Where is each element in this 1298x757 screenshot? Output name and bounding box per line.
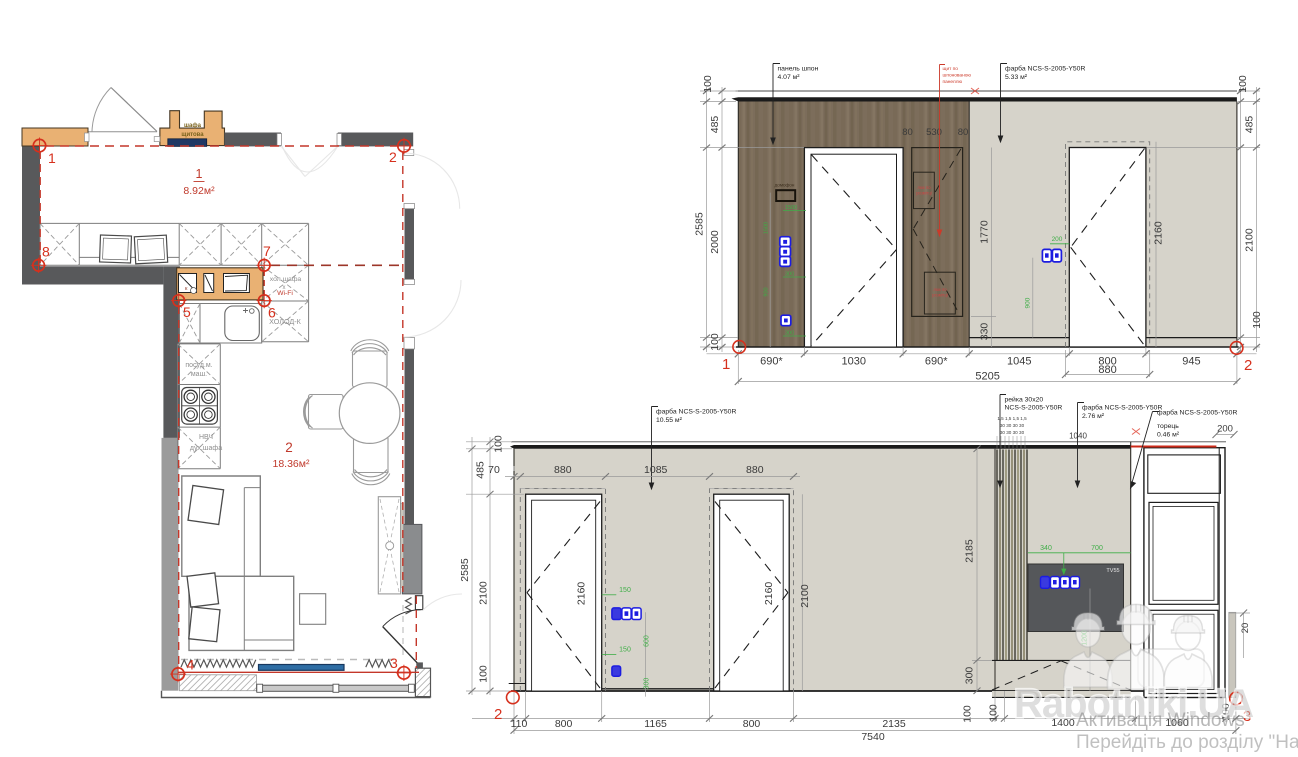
svg-text:100: 100 [988, 704, 1000, 722]
svg-text:1: 1 [48, 150, 56, 166]
svg-text:6: 6 [268, 305, 276, 321]
svg-text:4: 4 [187, 657, 195, 673]
svg-text:NCS-S-2005-Y50R: NCS-S-2005-Y50R [1005, 405, 1063, 412]
svg-text:1,5 1,5 1,5 1,5: 1,5 1,5 1,5 1,5 [997, 416, 1027, 421]
svg-text:1040: 1040 [1069, 432, 1087, 441]
svg-text:800: 800 [555, 718, 573, 730]
svg-text:900: 900 [764, 287, 770, 296]
svg-text:2: 2 [1244, 357, 1252, 374]
svg-text:690*: 690* [760, 356, 783, 368]
svg-text:600: 600 [644, 635, 651, 647]
svg-text:0.46 м²: 0.46 м² [1157, 432, 1180, 439]
svg-text:485: 485 [1244, 116, 1256, 134]
svg-text:700: 700 [1091, 545, 1103, 552]
svg-text:5205: 5205 [975, 371, 999, 383]
svg-text:Wi-Fi: Wi-Fi [277, 290, 293, 297]
svg-text:2160: 2160 [575, 582, 587, 606]
svg-text:340: 340 [1040, 545, 1052, 552]
svg-text:1: 1 [196, 167, 203, 181]
svg-text:2.76 м²: 2.76 м² [1082, 413, 1105, 420]
svg-text:20: 20 [1240, 623, 1251, 634]
svg-text:люк по: люк по [933, 287, 947, 292]
svg-text:100: 100 [1251, 311, 1263, 329]
svg-text:150: 150 [619, 647, 631, 654]
svg-text:200: 200 [1052, 236, 1063, 243]
svg-text:880: 880 [554, 464, 572, 476]
svg-text:100: 100 [493, 435, 505, 453]
svg-text:880: 880 [1098, 364, 1116, 376]
svg-text:5.33 м²: 5.33 м² [1005, 74, 1028, 81]
svg-text:2160: 2160 [1153, 221, 1165, 245]
svg-text:фарба NCS-S-2005-Y50R: фарба NCS-S-2005-Y50R [656, 408, 736, 416]
svg-text:1: 1 [722, 356, 730, 373]
svg-text:фарба NCS-S-2005-Y50R: фарба NCS-S-2005-Y50R [1157, 409, 1237, 417]
svg-text:2000: 2000 [709, 230, 721, 254]
svg-text:шафа: шафа [184, 122, 202, 129]
svg-text:30 30 30 30: 30 30 30 30 [1000, 430, 1025, 435]
svg-text:945: 945 [1182, 356, 1200, 368]
svg-text:5: 5 [183, 304, 191, 320]
svg-text:Активація Windows: Активація Windows [1076, 710, 1245, 731]
svg-text:300: 300 [785, 272, 794, 278]
svg-text:1030: 1030 [842, 356, 866, 368]
svg-text:1165: 1165 [644, 718, 667, 730]
svg-text:1500: 1500 [785, 205, 797, 211]
svg-text:торець: торець [1157, 423, 1179, 430]
svg-text:2585: 2585 [459, 558, 471, 582]
svg-text:110: 110 [511, 718, 528, 730]
svg-text:900: 900 [1025, 297, 1032, 308]
svg-text:100: 100 [709, 333, 721, 351]
svg-text:панель шпон: панель шпон [778, 66, 819, 73]
svg-text:фарба NCS-S-2005-Y50R: фарба NCS-S-2005-Y50R [1082, 404, 1162, 412]
svg-text:Перейдіть до розділу "Настройк: Перейдіть до розділу "Настройки" [1076, 732, 1298, 753]
svg-text:посуд.м.: посуд.м. [185, 362, 212, 369]
svg-text:TV55: TV55 [1106, 568, 1119, 574]
svg-text:3: 3 [390, 655, 398, 671]
svg-text:2585: 2585 [694, 212, 706, 236]
svg-text:2100: 2100 [799, 584, 811, 608]
svg-text:10.55 м²: 10.55 м² [656, 417, 683, 424]
svg-text:80: 80 [958, 127, 969, 138]
svg-text:панеллю: панеллю [943, 80, 963, 85]
svg-text:4.07 м²: 4.07 м² [778, 74, 801, 81]
svg-text:300: 300 [785, 331, 794, 337]
svg-text:2100: 2100 [1244, 228, 1256, 252]
svg-text:2: 2 [494, 706, 502, 723]
svg-text:люк по: люк по [917, 185, 931, 190]
svg-text:100: 100 [1237, 75, 1249, 93]
svg-text:маш.: маш. [191, 371, 207, 378]
svg-text:щит по: щит по [943, 67, 959, 72]
svg-text:150: 150 [619, 587, 631, 594]
svg-text:300: 300 [964, 667, 976, 685]
svg-text:8.92м²: 8.92м² [183, 185, 215, 197]
svg-text:розмітці: розмітці [932, 293, 948, 298]
svg-text:100: 100 [702, 75, 714, 93]
svg-text:330: 330 [979, 323, 991, 341]
svg-text:фарба NCS-S-2005-Y50R: фарба NCS-S-2005-Y50R [1005, 65, 1085, 73]
svg-text:100: 100 [478, 665, 490, 683]
svg-text:рейка 30x20: рейка 30x20 [1005, 396, 1044, 404]
svg-text:18.36м²: 18.36м² [273, 458, 310, 470]
svg-text:880: 880 [746, 464, 764, 476]
svg-text:7540: 7540 [861, 731, 885, 743]
svg-text:100: 100 [962, 705, 974, 723]
svg-text:1045: 1045 [1007, 356, 1031, 368]
svg-text:2100: 2100 [478, 581, 490, 605]
svg-text:690*: 690* [925, 356, 948, 368]
svg-text:розмітці: розмітці [916, 191, 932, 196]
svg-text:485: 485 [475, 461, 487, 479]
svg-text:шпонованою: шпонованою [943, 74, 972, 79]
svg-text:80: 80 [902, 127, 913, 138]
svg-text:2185: 2185 [964, 539, 976, 563]
svg-text:домофон: домофон [775, 183, 795, 188]
svg-text:1085: 1085 [644, 464, 668, 476]
svg-text:70: 70 [488, 464, 500, 476]
svg-text:7: 7 [263, 243, 271, 259]
svg-text:800: 800 [743, 718, 761, 730]
svg-text:2160: 2160 [763, 582, 775, 606]
svg-text:30 30 30 30: 30 30 30 30 [1000, 423, 1025, 428]
svg-text:щитова: щитова [181, 132, 204, 138]
svg-text:2: 2 [285, 440, 293, 455]
svg-text:200: 200 [1217, 424, 1233, 435]
svg-text:2: 2 [389, 149, 397, 165]
svg-text:485: 485 [709, 116, 721, 134]
svg-text:2135: 2135 [882, 718, 906, 730]
svg-text:1770: 1770 [979, 220, 991, 244]
svg-text:дух.шафа: дух.шафа [190, 445, 222, 452]
svg-text:1500: 1500 [764, 222, 770, 234]
svg-text:8: 8 [42, 244, 50, 260]
svg-text:300: 300 [644, 678, 651, 690]
svg-text:НВЧ: НВЧ [199, 434, 213, 441]
svg-text:хол.шафа: хол.шафа [270, 276, 302, 283]
